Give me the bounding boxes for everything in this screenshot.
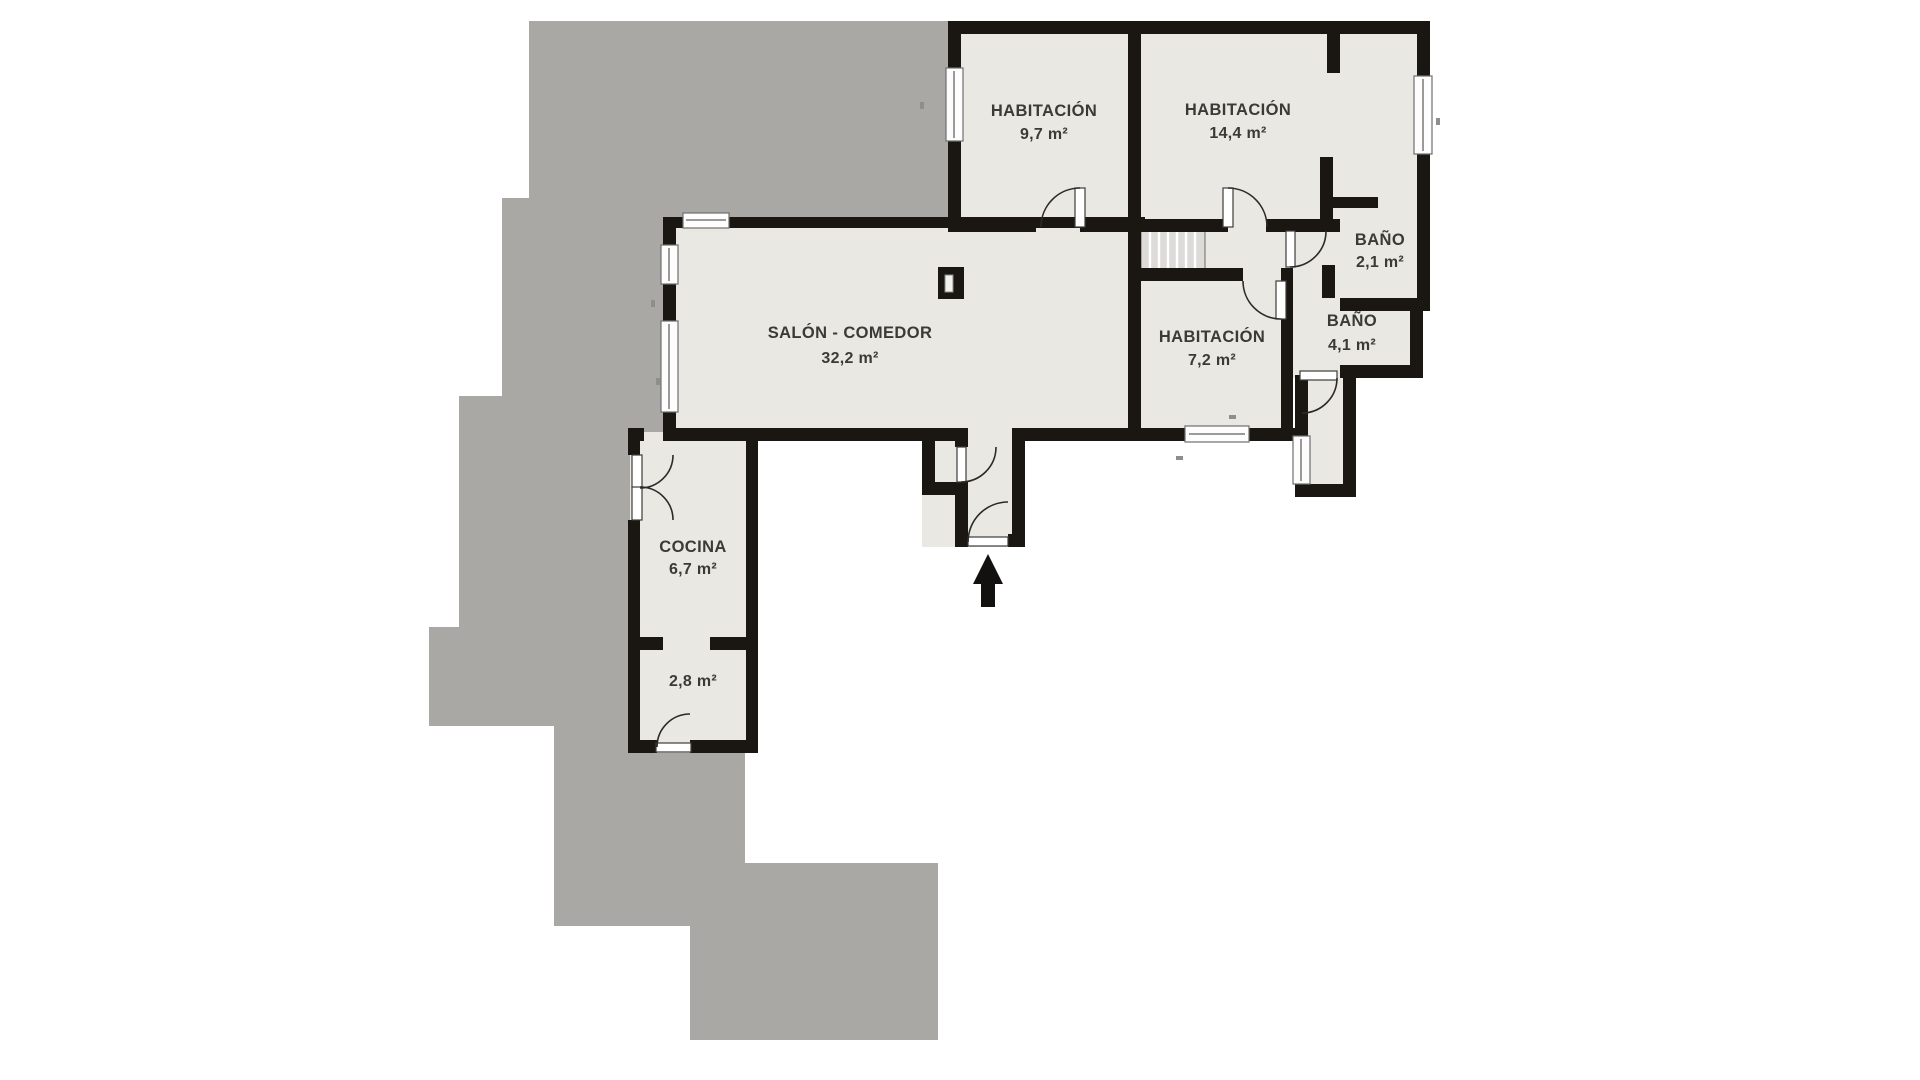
room-label-habitacion-3: HABITACIÓN xyxy=(1159,327,1265,346)
entrance-arrow-icon xyxy=(973,554,1003,607)
window xyxy=(1414,76,1432,154)
room-label-habitacion-1: HABITACIÓN xyxy=(991,101,1097,120)
floor-plan: HABITACIÓN 9,7 m² HABITACIÓN 14,4 m² BAÑ… xyxy=(0,0,1920,1080)
stairs xyxy=(1141,231,1205,269)
room-area-habitacion-2: 14,4 m² xyxy=(1209,125,1266,142)
window xyxy=(683,213,729,228)
room-area-cocina: 6,7 m² xyxy=(669,561,717,578)
window xyxy=(946,68,963,141)
room-area-salon: 32,2 m² xyxy=(821,350,878,367)
room-area-habitacion-3: 7,2 m² xyxy=(1188,352,1236,369)
window xyxy=(661,245,678,284)
room-label-habitacion-2: HABITACIÓN xyxy=(1185,100,1291,119)
room-label-salon: SALÓN - COMEDOR xyxy=(768,323,933,342)
room-area-bano-2: 4,1 m² xyxy=(1328,337,1376,354)
room-label-cocina: COCINA xyxy=(659,538,726,556)
room-area-trastero: 2,8 m² xyxy=(669,673,717,690)
window xyxy=(661,321,678,412)
room-label-bano-2: BAÑO xyxy=(1327,310,1377,330)
room-label-bano-1: BAÑO xyxy=(1355,229,1405,249)
window xyxy=(1185,426,1249,442)
room-area-bano-1: 2,1 m² xyxy=(1356,254,1404,271)
column xyxy=(938,267,964,299)
room-area-habitacion-1: 9,7 m² xyxy=(1020,126,1068,143)
window xyxy=(1293,436,1310,484)
